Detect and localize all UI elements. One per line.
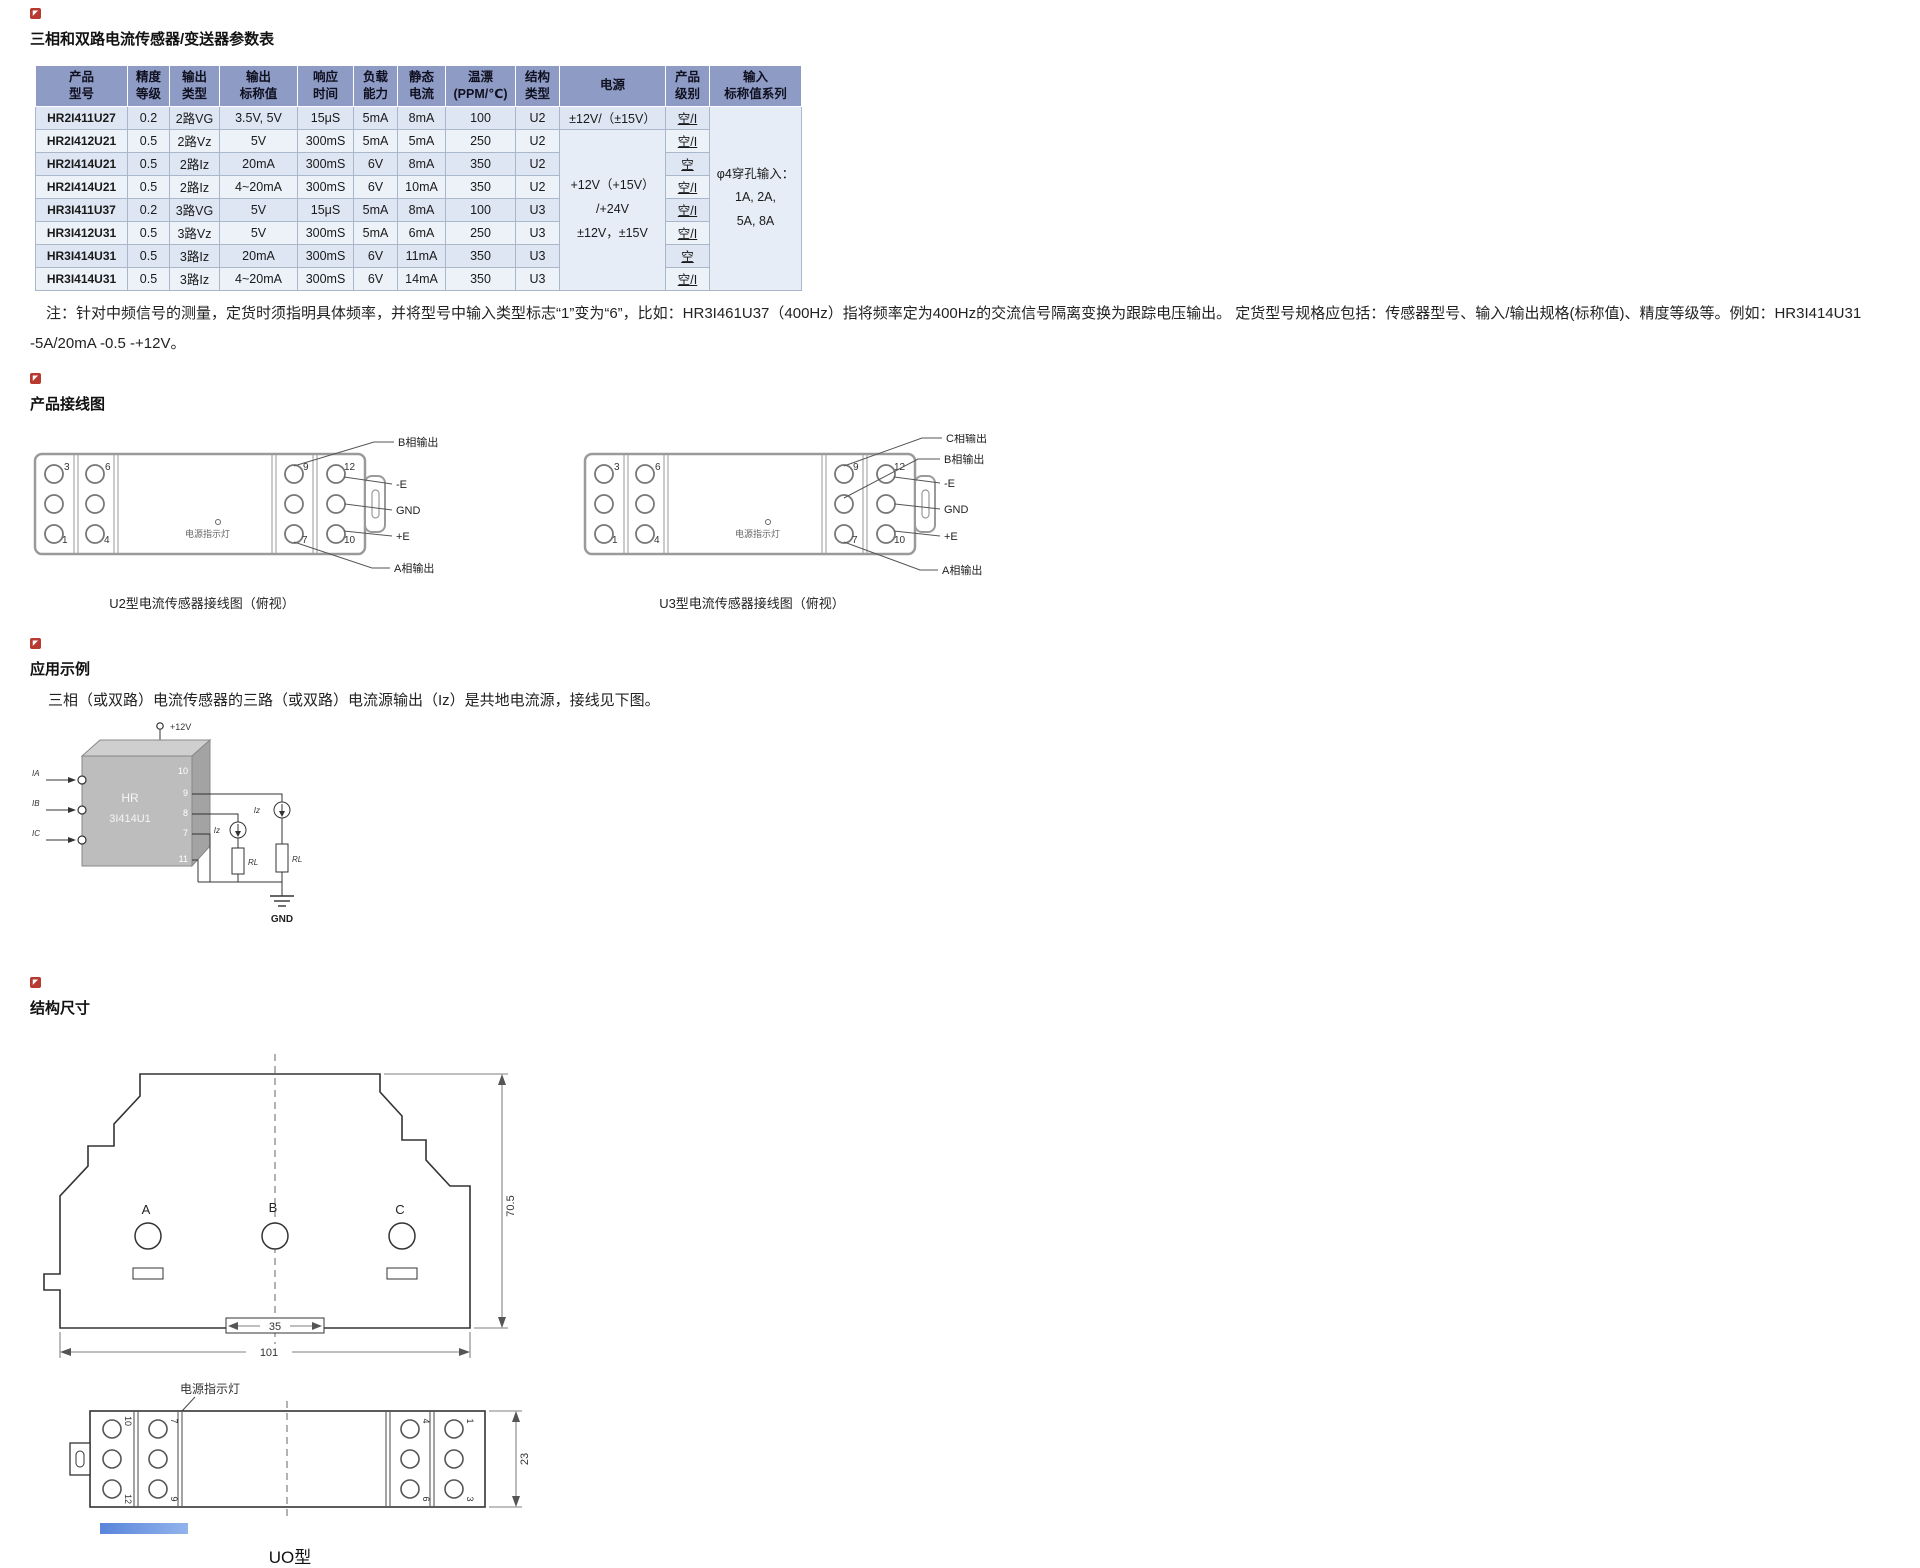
- table-row: HR3I411U37 0.2 3路VG 5V 15μS 5mA 8mA 100 …: [36, 198, 802, 221]
- supply-node: [157, 723, 163, 729]
- cell-level: 空: [666, 152, 710, 175]
- cell-quiescent: 8mA: [398, 106, 446, 129]
- cell-accuracy: 0.5: [128, 152, 170, 175]
- cell-response: 300mS: [298, 152, 354, 175]
- cell-model: HR3I412U31: [36, 221, 128, 244]
- table-row: HR2I414U21 0.5 2路Iz 4~20mA 300mS 6V 10mA…: [36, 175, 802, 198]
- cell-drift: 100: [446, 198, 516, 221]
- col-output-type: 输出 类型: [170, 66, 220, 107]
- pin-9: 9: [183, 788, 188, 798]
- cell-structure: U3: [516, 221, 560, 244]
- u2-module-drawing: 3 6 1 4 9 12 7 10 电源指示灯: [32, 434, 512, 584]
- u2-caption: U2型电流传感器接线图（俯视）: [32, 593, 372, 612]
- slot: [387, 1268, 417, 1279]
- anchor-link-icon[interactable]: ◤: [30, 638, 41, 649]
- terminal-number: 12: [894, 462, 906, 473]
- cell-response: 300mS: [298, 244, 354, 267]
- cell-load: 5mA: [354, 106, 398, 129]
- hole-label-b: B: [269, 1200, 278, 1215]
- cell-power: ±12V/（±15V）: [560, 106, 666, 129]
- cell-output-type: 3路Iz: [170, 267, 220, 290]
- cell-model: HR2I411U27: [36, 106, 128, 129]
- input-ia: IA: [32, 769, 40, 778]
- cell-output-type: 2路Iz: [170, 175, 220, 198]
- col-input-series: 输入 标称值系列: [710, 66, 802, 107]
- page: ◤ 三相和双路电流传感器/变送器参数表 产品 型号 精度 等级 输出 类型 输出…: [0, 0, 1920, 1568]
- u2-label-a-out: A相输出: [394, 561, 434, 575]
- terminal-number: 9: [303, 462, 309, 473]
- table-row: HR2I414U21 0.5 2路Iz 20mA 300mS 6V 8mA 35…: [36, 152, 802, 175]
- cell-output-type: 2路VG: [170, 106, 220, 129]
- cell-quiescent: 8mA: [398, 198, 446, 221]
- terminal-number: 4: [104, 535, 110, 546]
- top-view-drawing: 电源指示灯 10 7 12 9 4 1 6 3: [30, 1379, 550, 1541]
- application-circuit: +12V HR 3I414U1 10 9 8 7 11 IA IB IC: [30, 714, 450, 944]
- cell-output-type: 3路VG: [170, 198, 220, 221]
- dim-total-width: 101: [260, 1347, 278, 1359]
- terminal-number: 7: [169, 1418, 179, 1423]
- wiring-heading: 产品接线图: [30, 393, 1920, 414]
- pin-10: 10: [178, 766, 188, 776]
- anchor-link-icon[interactable]: ◤: [30, 8, 41, 19]
- cell-accuracy: 0.5: [128, 175, 170, 198]
- ground-symbol: [270, 896, 294, 906]
- cell-load: 5mA: [354, 129, 398, 152]
- chip-top-face: [82, 740, 210, 756]
- gnd-label: GND: [271, 914, 293, 925]
- col-output-nominal: 输出 标称值: [220, 66, 298, 107]
- cell-input-series: φ4穿孔输入： 1A, 2A, 5A, 8A: [710, 106, 802, 290]
- u3-label-plus-e: +E: [944, 531, 958, 543]
- application-description: 三相（或双路）电流传感器的三路（或双路）电流源输出（Iz）是共地电流源，接线见下…: [48, 689, 1920, 710]
- hole-label-c: C: [395, 1202, 404, 1217]
- cell-drift: 350: [446, 267, 516, 290]
- cell-structure: U2: [516, 175, 560, 198]
- col-response: 响应 时间: [298, 66, 354, 107]
- cell-structure: U2: [516, 152, 560, 175]
- table-row: HR3I414U31 0.5 3路Iz 4~20mA 300mS 6V 14mA…: [36, 267, 802, 290]
- terminal-number: 1: [465, 1418, 475, 1423]
- cell-level: 空/I: [666, 198, 710, 221]
- cell-drift: 250: [446, 221, 516, 244]
- cell-response: 300mS: [298, 267, 354, 290]
- cell-response: 300mS: [298, 221, 354, 244]
- pin-8: 8: [183, 808, 188, 818]
- cell-model: HR3I414U31: [36, 267, 128, 290]
- cell-model: HR2I412U21: [36, 129, 128, 152]
- cell-response: 300mS: [298, 129, 354, 152]
- iz-label: Iz: [254, 806, 260, 815]
- terminal-number: 3: [614, 462, 620, 473]
- rl-label: RL: [292, 855, 302, 864]
- terminal-number: 6: [105, 462, 111, 473]
- terminal-number: 6: [655, 462, 661, 473]
- cell-power-merged: +12V（+15V） /+24V ±12V，±15V: [560, 129, 666, 290]
- u3-wiring-diagram: 3 6 1 4 9 12 7 10 电源指示灯: [582, 434, 1062, 612]
- u2-wiring-diagram: 3 6 1 4 9 12 7 10 电源指示灯: [32, 434, 512, 612]
- cell-load: 5mA: [354, 221, 398, 244]
- cell-quiescent: 10mA: [398, 175, 446, 198]
- cell-model: HR3I411U37: [36, 198, 128, 221]
- supply-label: +12V: [170, 722, 191, 732]
- cell-structure: U3: [516, 244, 560, 267]
- cell-quiescent: 5mA: [398, 129, 446, 152]
- input-ib: IB: [32, 799, 40, 808]
- col-load: 负载 能力: [354, 66, 398, 107]
- cell-level: 空/I: [666, 221, 710, 244]
- cell-structure: U3: [516, 198, 560, 221]
- cell-drift: 350: [446, 152, 516, 175]
- cell-structure: U3: [516, 267, 560, 290]
- cell-model: HR2I414U21: [36, 152, 128, 175]
- u2-label-gnd: GND: [396, 505, 421, 517]
- cell-accuracy: 0.5: [128, 244, 170, 267]
- parameter-table: 产品 型号 精度 等级 输出 类型 输出 标称值 响应 时间 负载 能力 静态 …: [35, 65, 802, 291]
- dim-depth: 23: [519, 1453, 531, 1465]
- terminal-number: 10: [344, 535, 356, 546]
- terminal-number: 3: [64, 462, 70, 473]
- cell-output-nominal: 3.5V, 5V: [220, 106, 298, 129]
- cell-output-nominal: 4~20mA: [220, 175, 298, 198]
- cell-quiescent: 11mA: [398, 244, 446, 267]
- cell-accuracy: 0.5: [128, 129, 170, 152]
- phase-holes: [135, 1223, 415, 1249]
- table-row: HR3I412U31 0.5 3路Vz 5V 300mS 5mA 6mA 250…: [36, 221, 802, 244]
- dim-inner-width: 35: [269, 1321, 281, 1333]
- table-row: HR2I411U27 0.2 2路VG 3.5V, 5V 15μS 5mA 8m…: [36, 106, 802, 129]
- terminal-number: 1: [612, 535, 618, 546]
- cell-response: 15μS: [298, 198, 354, 221]
- terminal-number: 12: [344, 462, 356, 473]
- table-header: 产品 型号 精度 等级 输出 类型 输出 标称值 响应 时间 负载 能力 静态 …: [36, 66, 802, 107]
- col-structure: 结构 类型: [516, 66, 560, 107]
- cell-response: 300mS: [298, 175, 354, 198]
- terminal-number: 7: [302, 535, 308, 546]
- terminal-number: 1: [62, 535, 68, 546]
- cell-quiescent: 14mA: [398, 267, 446, 290]
- dim-height: 70.5: [505, 1195, 517, 1216]
- col-power: 电源: [560, 66, 666, 107]
- dimensions-heading: 结构尺寸: [30, 997, 1920, 1018]
- cell-response: 15μS: [298, 106, 354, 129]
- cell-output-type: 2路Iz: [170, 152, 220, 175]
- col-accuracy: 精度 等级: [128, 66, 170, 107]
- iz-label: Iz: [214, 826, 220, 835]
- cell-output-nominal: 20mA: [220, 244, 298, 267]
- u2-label-minus-e: -E: [396, 479, 407, 491]
- cell-drift: 350: [446, 244, 516, 267]
- rl-label: RL: [248, 858, 258, 867]
- terminal-number: 12: [123, 1494, 133, 1504]
- cell-quiescent: 6mA: [398, 221, 446, 244]
- pin-11: 11: [179, 854, 188, 864]
- chip-model: 3I414U1: [109, 813, 151, 825]
- u3-module-drawing: 3 6 1 4 9 12 7 10 电源指示灯: [582, 434, 1062, 584]
- cell-output-nominal: 5V: [220, 198, 298, 221]
- terminal-number: 9: [853, 462, 859, 473]
- load-resistor: [276, 844, 288, 872]
- terminal-number: 3: [465, 1496, 475, 1501]
- cell-structure: U2: [516, 129, 560, 152]
- power-led-label: 电源指示灯: [180, 1381, 240, 1396]
- cell-drift: 350: [446, 175, 516, 198]
- terminal-number: 10: [894, 535, 906, 546]
- module-outline: [44, 1074, 470, 1328]
- chip-front-face: [82, 756, 192, 866]
- front-dimension-drawing: A B C 70.5 35 101: [30, 1028, 550, 1368]
- col-quiescent: 静态 电流: [398, 66, 446, 107]
- cell-load: 6V: [354, 175, 398, 198]
- pin-7: 7: [183, 828, 188, 838]
- col-drift: 温漂 (PPM/℃): [446, 66, 516, 107]
- u3-label-a-out: A相输出: [942, 563, 982, 577]
- power-led-label: 电源指示灯: [185, 528, 230, 539]
- cell-quiescent: 8mA: [398, 152, 446, 175]
- cell-drift: 100: [446, 106, 516, 129]
- anchor-link-icon[interactable]: ◤: [30, 373, 41, 384]
- u2-label-plus-e: +E: [396, 531, 410, 543]
- cell-level: 空/I: [666, 267, 710, 290]
- u3-label-gnd: GND: [944, 504, 969, 516]
- cell-output-nominal: 5V: [220, 129, 298, 152]
- slot: [133, 1268, 163, 1279]
- cell-level: 空/I: [666, 106, 710, 129]
- cell-output-nominal: 5V: [220, 221, 298, 244]
- cell-structure: U2: [516, 106, 560, 129]
- cell-level: 空/I: [666, 129, 710, 152]
- power-led-label: 电源指示灯: [735, 528, 780, 539]
- terminal-number: 6: [421, 1496, 431, 1501]
- table-row: HR3I414U31 0.5 3路Iz 20mA 300mS 6V 11mA 3…: [36, 244, 802, 267]
- cell-accuracy: 0.5: [128, 221, 170, 244]
- load-resistor: [232, 848, 244, 874]
- chip-side-face: [192, 740, 210, 866]
- terminal-number: 9: [169, 1496, 179, 1501]
- input-ic: IC: [32, 829, 40, 838]
- cell-output-nominal: 20mA: [220, 152, 298, 175]
- u3-label-minus-e: -E: [944, 478, 955, 490]
- cell-accuracy: 0.2: [128, 198, 170, 221]
- terminal-number: 4: [421, 1418, 431, 1423]
- cell-load: 5mA: [354, 198, 398, 221]
- cell-accuracy: 0.2: [128, 106, 170, 129]
- u2-label-b-out: B相输出: [398, 435, 438, 449]
- cell-load: 6V: [354, 244, 398, 267]
- col-level: 产品 级别: [666, 66, 710, 107]
- cell-output-type: 2路Vz: [170, 129, 220, 152]
- cell-level: 空: [666, 244, 710, 267]
- terminal-number: 7: [852, 535, 858, 546]
- cell-load: 6V: [354, 152, 398, 175]
- cell-load: 6V: [354, 267, 398, 290]
- terminal-number: 10: [123, 1416, 133, 1426]
- hole-label-a: A: [142, 1202, 151, 1217]
- cell-model: HR3I414U31: [36, 244, 128, 267]
- cell-level: 空/I: [666, 175, 710, 198]
- col-model: 产品 型号: [36, 66, 128, 107]
- uo-type-caption: UO型: [30, 1543, 550, 1568]
- cell-drift: 250: [446, 129, 516, 152]
- table-row: HR2I412U21 0.5 2路Vz 5V 300mS 5mA 5mA 250…: [36, 129, 802, 152]
- chip-brand: HR: [121, 791, 139, 805]
- wiring-diagrams: 3 6 1 4 9 12 7 10 电源指示灯: [32, 434, 1920, 612]
- application-heading: 应用示例: [30, 658, 1920, 679]
- u3-caption: U3型电流传感器接线图（俯视）: [582, 593, 922, 612]
- cell-accuracy: 0.5: [128, 267, 170, 290]
- u3-label-c-out: C相输出: [946, 434, 987, 445]
- page-title: 三相和双路电流传感器/变送器参数表: [30, 28, 1920, 49]
- cell-output-nominal: 4~20mA: [220, 267, 298, 290]
- u3-label-b-out: B相输出: [944, 452, 984, 466]
- cell-output-type: 3路Vz: [170, 221, 220, 244]
- cell-model: HR2I414U21: [36, 175, 128, 198]
- cell-output-type: 3路Iz: [170, 244, 220, 267]
- bottom-artifact: [100, 1523, 188, 1534]
- terminal-number: 4: [654, 535, 660, 546]
- anchor-link-icon[interactable]: ◤: [30, 977, 41, 988]
- order-note: 注：针对中频信号的测量，定货时须指明具体频率，并将型号中输入类型标志“1”变为“…: [30, 299, 1908, 359]
